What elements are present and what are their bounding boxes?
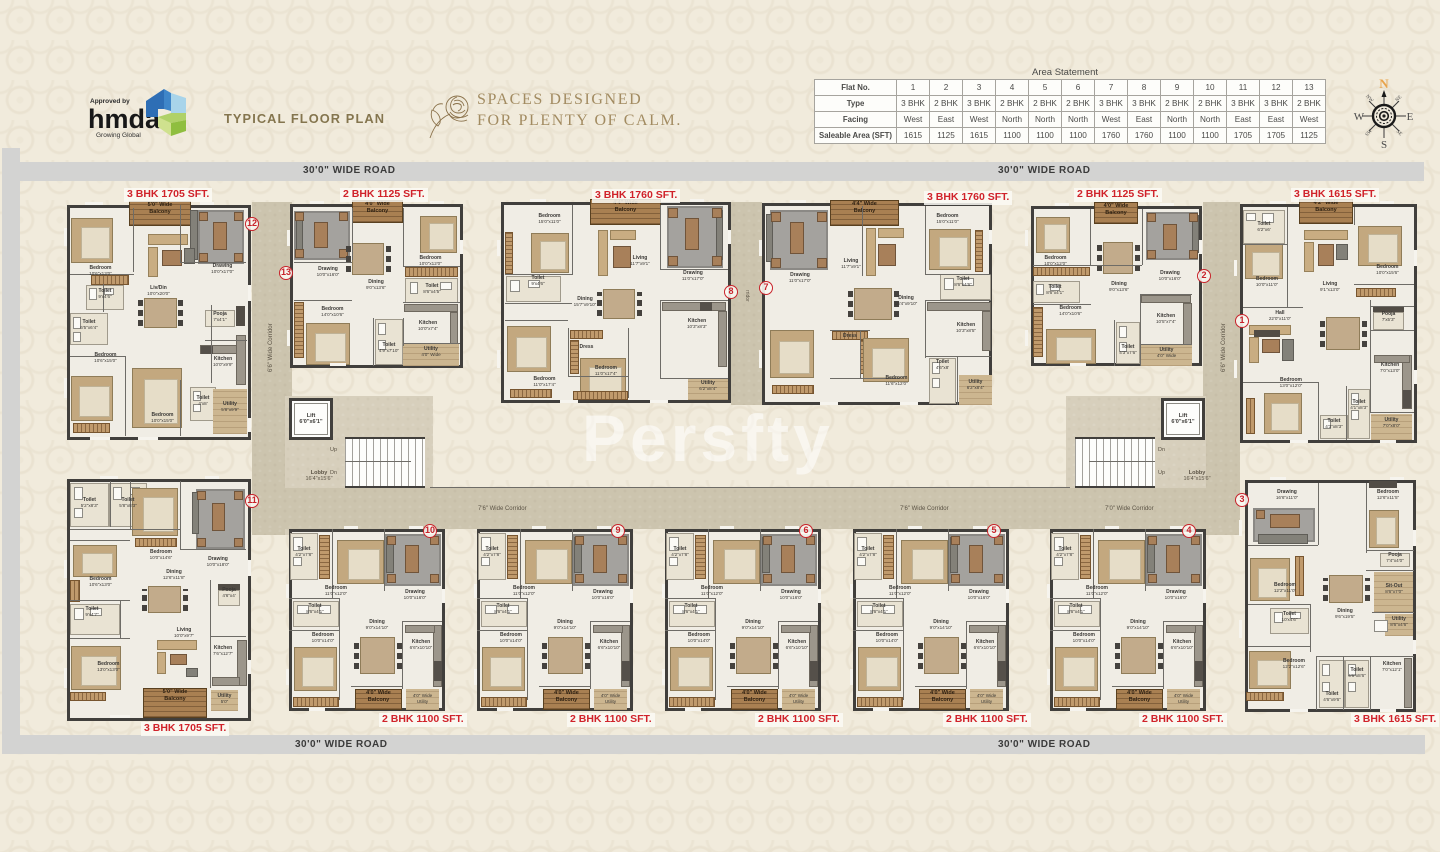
svg-text:E: E: [1407, 111, 1414, 123]
svg-text:SW: SW: [1365, 129, 1374, 138]
svg-text:W: W: [1354, 111, 1365, 123]
svg-text:NW: NW: [1364, 94, 1374, 104]
svg-text:N: N: [1379, 76, 1389, 91]
svg-text:NE: NE: [1395, 95, 1403, 103]
svg-text:S: S: [1381, 139, 1387, 150]
svg-text:SE: SE: [1395, 130, 1403, 138]
